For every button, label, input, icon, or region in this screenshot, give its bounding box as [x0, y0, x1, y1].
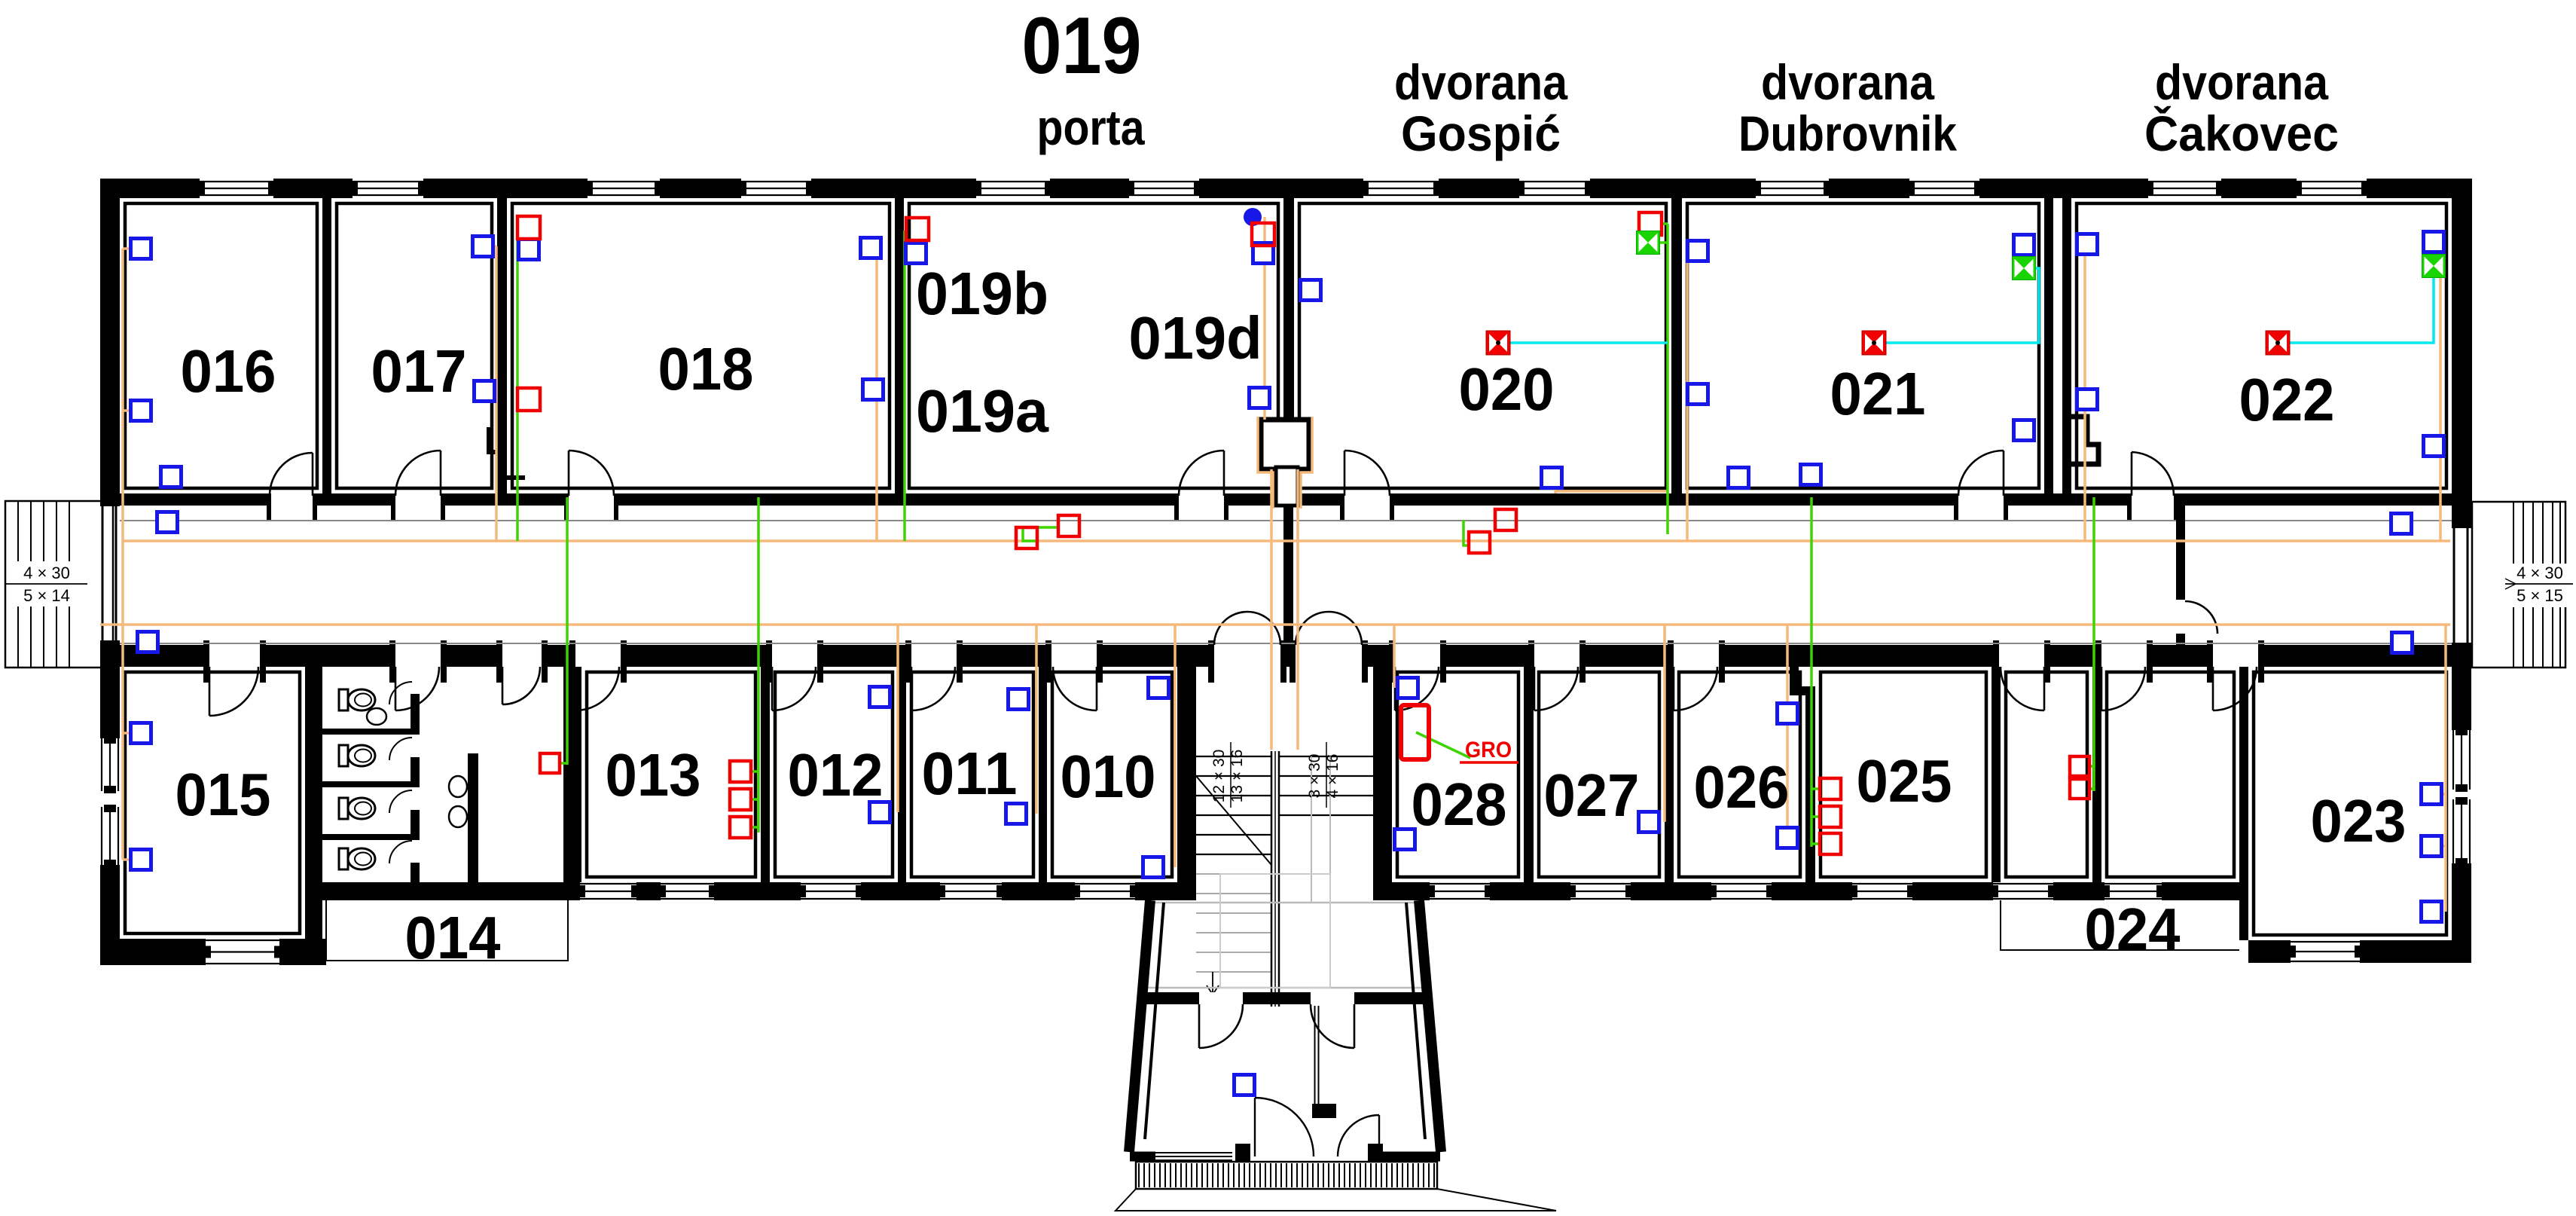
svg-text:018: 018 — [658, 335, 754, 402]
svg-text:027: 027 — [1544, 762, 1640, 829]
svg-text:019d: 019d — [1129, 304, 1262, 371]
svg-text:5 × 15: 5 × 15 — [2516, 586, 2563, 605]
svg-text:019a: 019a — [916, 377, 1049, 445]
svg-text:12 × 30: 12 × 30 — [1210, 750, 1228, 803]
svg-text:022: 022 — [2239, 366, 2335, 433]
svg-text:017: 017 — [371, 338, 467, 405]
svg-text:020: 020 — [1459, 356, 1555, 423]
svg-text:Čakovec: Čakovec — [2144, 105, 2339, 161]
svg-text:4 × 30: 4 × 30 — [23, 564, 70, 582]
svg-text:Dubrovnik: Dubrovnik — [1738, 105, 1957, 161]
svg-text:Gospić: Gospić — [1401, 105, 1561, 161]
svg-text:dvorana: dvorana — [1761, 54, 1935, 110]
svg-text:4 × 30: 4 × 30 — [2516, 564, 2563, 582]
svg-text:028: 028 — [1412, 771, 1507, 838]
svg-text:024: 024 — [2085, 896, 2181, 963]
svg-text:025: 025 — [1857, 747, 1952, 814]
svg-text:010: 010 — [1061, 743, 1156, 810]
svg-text:014: 014 — [405, 904, 501, 971]
svg-text:019b: 019b — [916, 260, 1048, 327]
svg-text:011: 011 — [922, 740, 1018, 807]
svg-text:015: 015 — [175, 761, 271, 828]
svg-text:026: 026 — [1694, 753, 1790, 820]
svg-text:3 × 30: 3 × 30 — [1306, 754, 1323, 799]
svg-text:dvorana: dvorana — [1394, 54, 1568, 110]
svg-text:023: 023 — [2311, 787, 2407, 854]
svg-text:019: 019 — [1022, 0, 1142, 90]
svg-text:013: 013 — [606, 741, 701, 808]
svg-text:012: 012 — [788, 741, 884, 808]
svg-text:021: 021 — [1830, 360, 1926, 427]
svg-text:016: 016 — [181, 338, 276, 405]
svg-text:5 × 14: 5 × 14 — [23, 586, 70, 605]
svg-text:GRO: GRO — [1465, 738, 1512, 762]
svg-text:dvorana: dvorana — [2155, 54, 2329, 110]
svg-text:porta: porta — [1037, 99, 1146, 155]
